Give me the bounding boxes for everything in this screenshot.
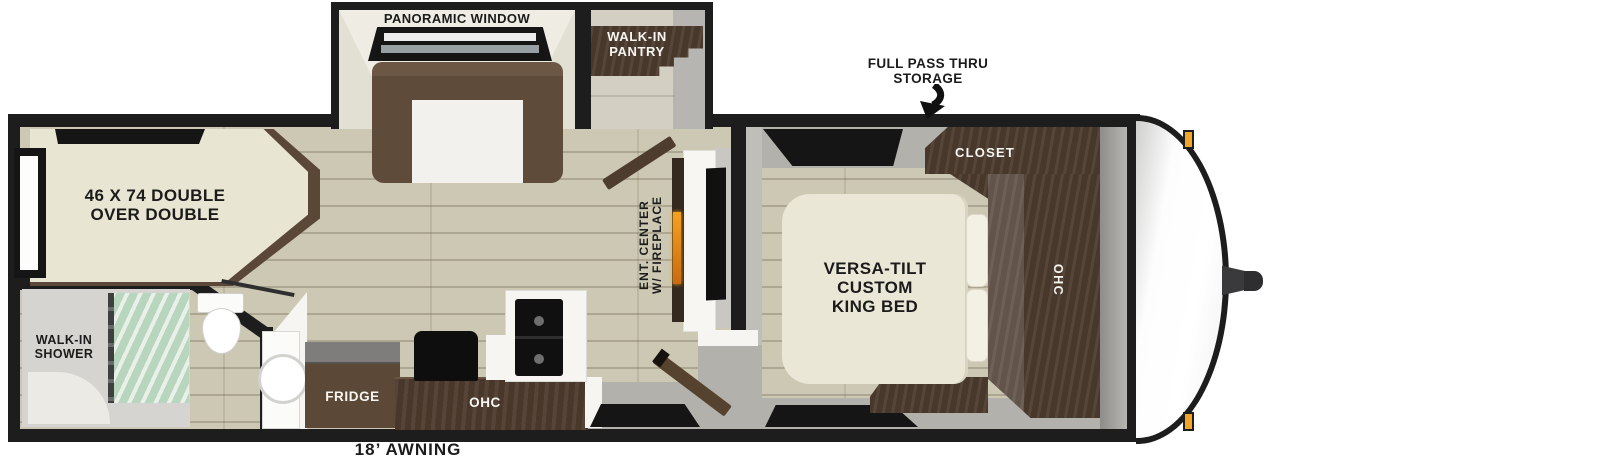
bedroom-passage-floor <box>698 345 762 385</box>
panoramic-window-glass-bottom <box>381 45 539 53</box>
shower-label-line2: SHOWER <box>22 347 106 361</box>
storage-label: FULL PASS THRU STORAGE <box>838 56 1018 86</box>
sink-drain-top <box>534 316 544 326</box>
shower-glass <box>112 293 189 403</box>
pantry-label-line1: WALK-IN <box>589 30 685 45</box>
wall-bedroom-partition <box>731 114 746 333</box>
shower-label: WALK-IN SHOWER <box>22 333 106 361</box>
floorplan-canvas: PANORAMIC WINDOW WALK-IN PANTRY 46 X 74 … <box>0 0 1600 460</box>
ent-center-label: ENT. CENTER W/ FIREPLACE <box>591 170 711 320</box>
fridge-top-panel <box>305 342 400 364</box>
bunk-label-line1: 46 X 74 DOUBLE <box>55 186 255 205</box>
panoramic-window-glass-top <box>384 33 536 41</box>
bedroom-ohc-text: OHC <box>1051 264 1065 296</box>
pantry-label-line2: PANTRY <box>589 45 685 60</box>
bedroom-wall-face <box>746 127 762 345</box>
marker-light-top <box>1183 130 1194 149</box>
ent-label-lines: ENT. CENTER W/ FIREPLACE <box>638 196 665 294</box>
bunk-window-top <box>55 129 205 144</box>
sink-counter-arm <box>486 335 506 380</box>
awning-label: 18’ AWNING <box>318 440 498 459</box>
stove <box>414 331 478 381</box>
shower-glass-hinge <box>108 293 114 403</box>
passthru-floor <box>1100 127 1127 430</box>
king-bed-pillow-bottom <box>966 289 988 362</box>
storage-arrow-icon <box>908 84 948 120</box>
living-bottom-window <box>590 404 700 427</box>
king-label-line2: CUSTOM <box>800 278 950 297</box>
king-label-line3: KING BED <box>800 297 950 316</box>
sink-drain-bottom <box>534 354 544 364</box>
fridge-label: FRIDGE <box>305 389 400 405</box>
front-cap <box>1136 115 1229 444</box>
panoramic-window-label: PANORAMIC WINDOW <box>350 12 564 27</box>
partition-wall-cap <box>698 330 758 346</box>
pantry-floor-seam <box>591 95 675 97</box>
wall-bottom <box>8 429 1140 442</box>
king-bed-pillow-top <box>966 214 988 287</box>
hitch-coupler <box>1244 271 1263 291</box>
bunk-label-line2: OVER DOUBLE <box>55 205 255 224</box>
bunk-bed-label: 46 X 74 DOUBLE OVER DOUBLE <box>55 186 255 224</box>
bunk-window-left-glass <box>20 156 38 270</box>
sofa-seat-cushion <box>412 100 523 183</box>
king-bed-label: VERSA-TILT CUSTOM KING BED <box>800 259 950 316</box>
sink-divider <box>515 336 563 339</box>
kitchen-ohc-label: OHC <box>430 395 540 411</box>
ent-label-line1: ENT. CENTER <box>638 196 651 294</box>
marker-light-bottom <box>1183 412 1194 431</box>
king-label-line1: VERSA-TILT <box>800 259 950 278</box>
shower-label-line1: WALK-IN <box>22 333 106 347</box>
bedroom-ohc-label: OHC <box>1028 225 1088 335</box>
closet-label: CLOSET <box>930 146 1040 161</box>
storage-label-line1: FULL PASS THRU <box>838 56 1018 71</box>
bathroom-sink-basin <box>258 354 308 404</box>
pantry-label: WALK-IN PANTRY <box>589 30 685 60</box>
ent-label-line2: W/ FIREPLACE <box>651 196 664 294</box>
